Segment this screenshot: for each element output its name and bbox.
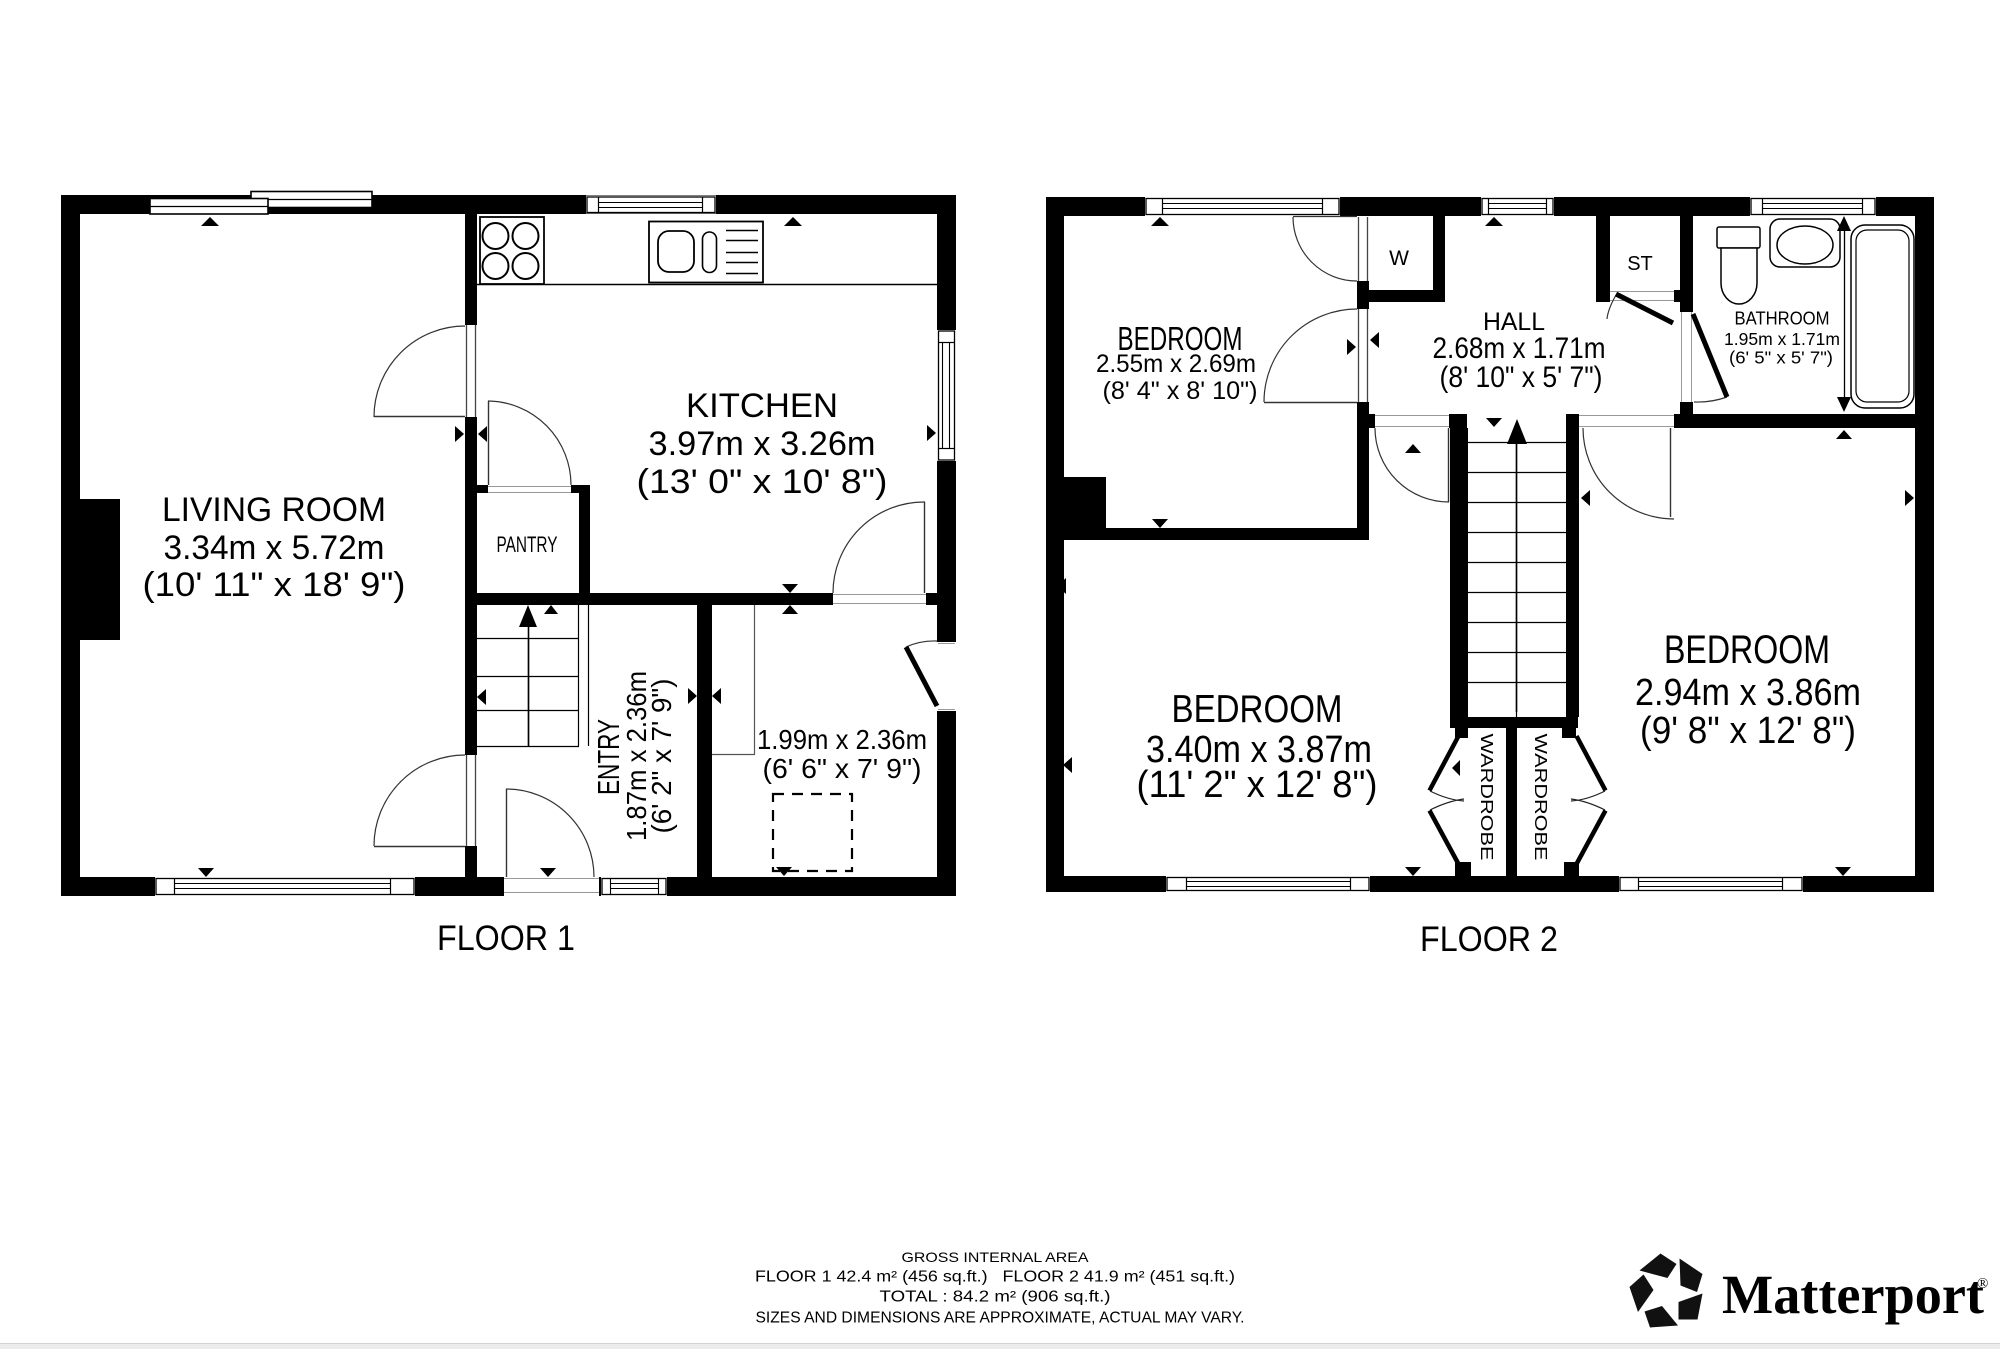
svg-text:LIVING ROOM: LIVING ROOM — [162, 491, 386, 529]
svg-text:WARDROBE: WARDROBE — [1477, 734, 1497, 861]
svg-text:BATHROOM: BATHROOM — [1735, 309, 1830, 329]
svg-text:3.34m x 5.72m: 3.34m x 5.72m — [164, 529, 385, 567]
svg-text:SIZES AND DIMENSIONS ARE APPRO: SIZES AND DIMENSIONS ARE APPROXIMATE, AC… — [756, 1310, 1245, 1327]
svg-text:®: ® — [1977, 1276, 1988, 1292]
svg-text:1.95m x 1.71m: 1.95m x 1.71m — [1724, 329, 1840, 349]
svg-text:Matterport: Matterport — [1722, 1264, 1985, 1325]
svg-text:1.99m x 2.36m: 1.99m x 2.36m — [757, 724, 927, 755]
svg-text:WARDROBE: WARDROBE — [1531, 734, 1551, 861]
svg-text:FLOOR 1 42.4 m² (456 sq.ft.): FLOOR 1 42.4 m² (456 sq.ft.) FLOOR 2 41.… — [755, 1269, 1235, 1286]
svg-text:(11' 2" x 12' 8"): (11' 2" x 12' 8") — [1137, 764, 1378, 806]
svg-text:(13' 0" x 10' 8"): (13' 0" x 10' 8") — [637, 463, 888, 501]
svg-text:2.55m x 2.69m: 2.55m x 2.69m — [1096, 350, 1256, 378]
svg-text:W: W — [1389, 247, 1409, 270]
svg-text:(8' 10" x 5' 7"): (8' 10" x 5' 7") — [1440, 361, 1603, 394]
svg-text:BEDROOM: BEDROOM — [1664, 628, 1830, 672]
svg-text:BEDROOM: BEDROOM — [1172, 688, 1343, 731]
svg-text:PANTRY: PANTRY — [497, 532, 558, 557]
svg-text:(8' 4" x 8' 10"): (8' 4" x 8' 10") — [1103, 377, 1258, 405]
svg-text:(9' 8" x 12' 8"): (9' 8" x 12' 8") — [1640, 710, 1856, 752]
svg-text:(6' 6" x 7' 9"): (6' 6" x 7' 9") — [763, 753, 922, 784]
svg-text:FLOOR 1: FLOOR 1 — [437, 919, 575, 958]
svg-text:3.97m x 3.26m: 3.97m x 3.26m — [649, 425, 876, 463]
svg-text:ST: ST — [1627, 253, 1653, 275]
svg-text:GROSS INTERNAL AREA: GROSS INTERNAL AREA — [902, 1249, 1090, 1265]
svg-text:(10' 11" x 18' 9"): (10' 11" x 18' 9") — [143, 566, 406, 604]
svg-text:(6' 5" x 5' 7"): (6' 5" x 5' 7") — [1729, 348, 1833, 368]
svg-text:FLOOR 2: FLOOR 2 — [1420, 920, 1558, 959]
svg-text:TOTAL : 84.2 m² (906 sq.ft.): TOTAL : 84.2 m² (906 sq.ft.) — [880, 1289, 1111, 1306]
svg-text:KITCHEN: KITCHEN — [686, 387, 838, 425]
svg-text:2.94m x 3.86m: 2.94m x 3.86m — [1635, 672, 1861, 714]
svg-text:(6' 2" x 7' 9"): (6' 2" x 7' 9") — [646, 679, 677, 834]
